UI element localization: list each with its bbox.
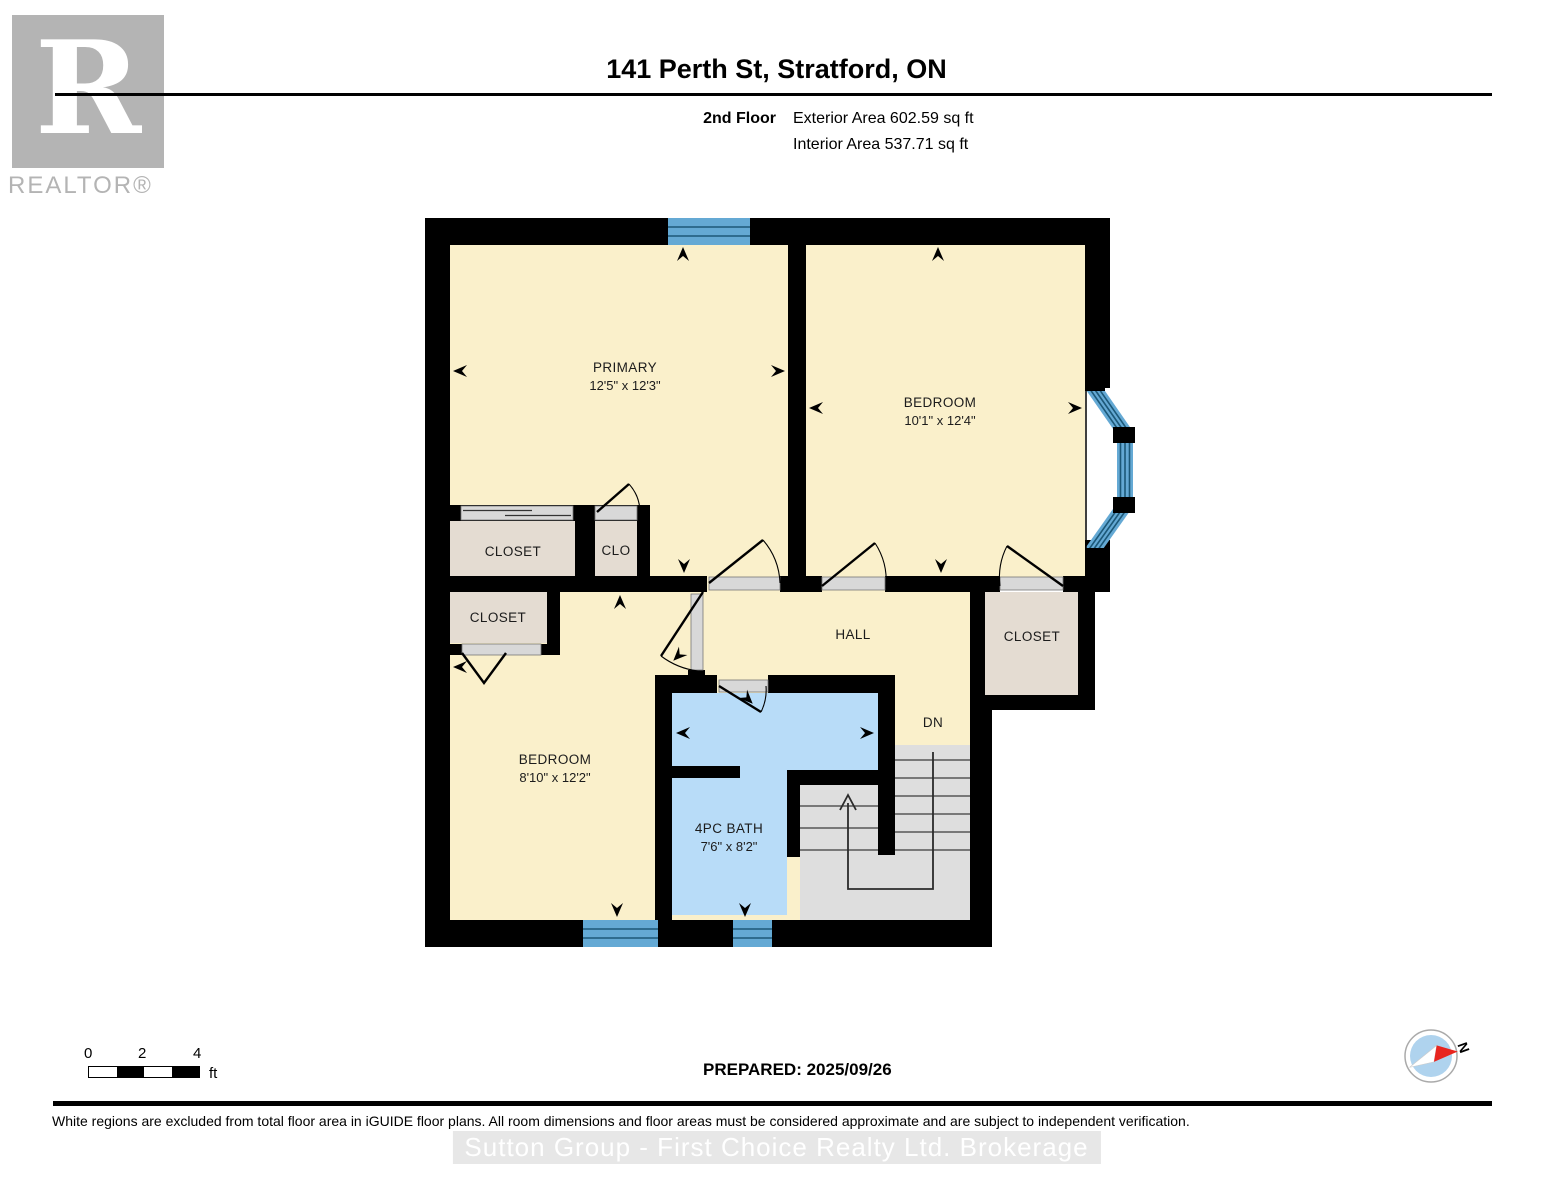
label-bedroom1: BEDROOM bbox=[519, 752, 592, 767]
label-closet2: CLOSET bbox=[470, 610, 526, 625]
label-bedroom2: BEDROOM bbox=[904, 395, 977, 410]
scale-bar-segments bbox=[88, 1066, 200, 1078]
scale-seg-2 bbox=[117, 1067, 145, 1077]
window-bottom-bath bbox=[733, 920, 772, 947]
window-top bbox=[668, 218, 750, 245]
exterior-area: Exterior Area 602.59 sq ft bbox=[793, 110, 974, 128]
interior-area: Interior Area 537.71 sq ft bbox=[793, 136, 968, 154]
floor-plan-svg: PRIMARY 12'5" x 12'3" BEDROOM 10'1" x 12… bbox=[420, 210, 1145, 955]
scale-tick-4: 4 bbox=[193, 1045, 201, 1062]
dims-bedroom2: 10'1" x 12'4" bbox=[904, 413, 976, 428]
compass-north-label: N bbox=[1454, 1040, 1472, 1055]
footer-divider bbox=[53, 1101, 1492, 1106]
header-divider bbox=[55, 93, 1492, 96]
scale-seg-1 bbox=[89, 1067, 117, 1077]
label-clo: CLO bbox=[602, 543, 631, 558]
scale-seg-3 bbox=[144, 1067, 172, 1077]
dims-bedroom1: 8'10" x 12'2" bbox=[519, 770, 591, 785]
realtor-logo-letter: R bbox=[35, 25, 141, 153]
realtor-logo-icon: R bbox=[12, 15, 164, 168]
scale-tick-0: 0 bbox=[84, 1045, 92, 1062]
floor-label: 2nd Floor bbox=[560, 110, 776, 128]
label-closet1: CLOSET bbox=[485, 544, 541, 559]
realtor-wordmark: REALTOR® bbox=[8, 172, 188, 200]
page-title: 141 Perth St, Stratford, ON bbox=[0, 54, 1553, 85]
scale-unit: ft bbox=[209, 1065, 217, 1082]
disclaimer-text: White regions are excluded from total fl… bbox=[52, 1113, 1190, 1129]
dims-bath: 7'6" x 8'2" bbox=[701, 839, 758, 854]
stairs-landing-fill bbox=[800, 853, 970, 928]
label-stairs-dn: DN bbox=[923, 715, 943, 730]
dims-primary: 12'5" x 12'3" bbox=[589, 378, 661, 393]
label-bath: 4PC BATH bbox=[695, 821, 763, 836]
scale-seg-4 bbox=[172, 1067, 200, 1077]
label-primary: PRIMARY bbox=[593, 360, 657, 375]
label-hall: HALL bbox=[835, 627, 870, 642]
prepared-date: PREPARED: 2025/09/26 bbox=[703, 1060, 892, 1080]
label-closet3: CLOSET bbox=[1004, 629, 1060, 644]
scale-bar: 0 2 4 ft bbox=[85, 1045, 245, 1085]
bay-window bbox=[1085, 377, 1135, 562]
floor-plan-page: R REALTOR® 141 Perth St, Stratford, ON 2… bbox=[0, 0, 1553, 1200]
brokerage-watermark: Sutton Group - First Choice Realty Ltd. … bbox=[452, 1131, 1100, 1164]
compass-icon: N bbox=[1395, 1018, 1505, 1100]
scale-tick-2: 2 bbox=[138, 1045, 146, 1062]
window-bottom-bedroom bbox=[583, 920, 658, 947]
